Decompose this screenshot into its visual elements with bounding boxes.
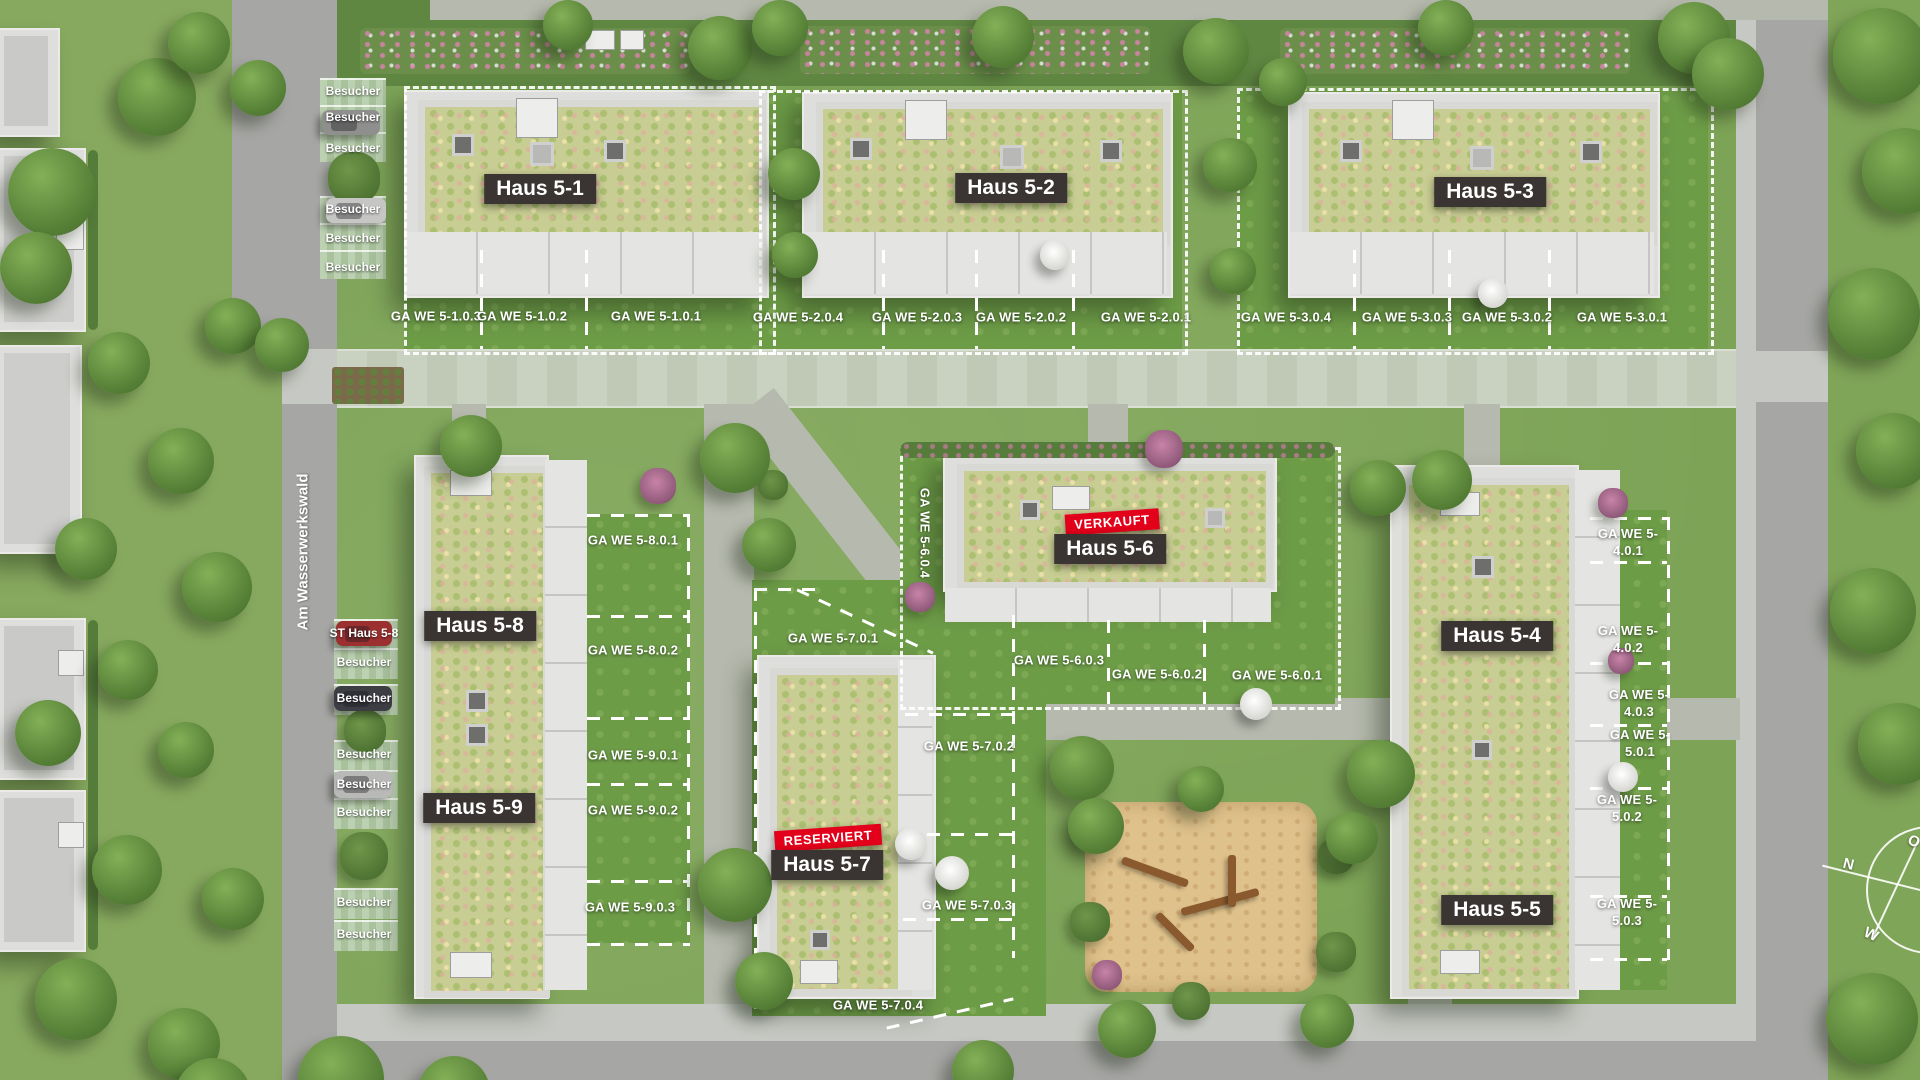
house-label-haus-5-4[interactable]: Haus 5-4 [1441,621,1553,651]
parking-label-st-haus-5-8: ST Haus 5-8 [330,626,399,640]
house-label-haus-5-8[interactable]: Haus 5-8 [424,611,536,641]
tree [15,700,81,766]
parcel-divider [587,880,690,883]
parcel-divider [1353,250,1356,349]
bush [340,832,388,880]
parking-label-visitor: Besucher [337,895,392,909]
parcel-divider [587,783,690,786]
flower-bush [1145,430,1183,468]
parking-label-visitor: Besucher [326,231,381,245]
parcel-label-5-3-0-3: GA WE 5-3.0.3 [1362,310,1452,325]
road-bottom [282,1041,1828,1080]
parcel-divider [1107,620,1110,704]
neighbor-building [0,28,60,137]
parcel-label-5-9-0-3: GA WE 5-9.0.3 [585,900,675,915]
parcel-label-5-3-0-2: GA WE 5-3.0.2 [1462,310,1552,325]
tree [1833,8,1920,104]
parcel-label-5-1-0-3: GA WE 5-1.0.3 [391,309,481,324]
tree [1828,268,1920,360]
tree [1183,18,1249,84]
parking-label-visitor: Besucher [326,110,381,124]
north-path [430,0,1828,20]
site-plan: Am Wasserwerkswald Besucher Besucher Bes… [0,0,1920,1080]
parasol [1478,278,1508,308]
parcel-divider [480,250,483,349]
tree [148,428,214,494]
parasol [1240,688,1272,720]
parcel-label-5-9-0-2: GA WE 5-9.0.2 [588,803,678,818]
roof-structure [800,960,838,984]
parcel-divider [587,514,690,517]
flower-bush [1092,960,1122,990]
parcel-divider [1448,250,1451,349]
parcel-divider [585,250,588,349]
tree [35,958,117,1040]
parking-label-visitor: Besucher [326,84,381,98]
tree [1418,0,1474,56]
tree [182,552,252,622]
neighbor-building [0,790,86,952]
bush [1070,902,1110,942]
parcel-label-5-4-0-1: GA WE 5-4.0.1 [1596,526,1660,560]
parcel-label-5-5-0-1: GA WE 5-5.0.1 [1608,727,1672,761]
parcel-label-5-2-0-2: GA WE 5-2.0.2 [976,310,1066,325]
parcel-divider [882,250,885,349]
terraces-haus-5-8-9 [545,460,587,990]
roof-vent [466,724,488,746]
parasol [935,856,969,890]
tree [92,835,162,905]
parcel-garden-haus-5-8-9 [587,514,690,943]
tree [0,232,72,304]
roof-vent [810,930,830,950]
roof-vent [466,690,488,712]
parking-label-visitor: Besucher [326,260,381,274]
tree [1050,736,1114,800]
tree [168,12,230,74]
parcel-divider [1072,250,1075,349]
hedge [88,620,98,950]
tree [1347,740,1415,808]
parcel-divider [1590,561,1667,564]
parcel-label-5-2-0-1: GA WE 5-2.0.1 [1101,310,1191,325]
parcel-divider [1590,958,1667,961]
roof-structure [1440,950,1480,974]
crosswalk-right [1736,351,1828,402]
tree [1068,798,1124,854]
parcel-divider [905,713,1012,716]
parcel-boundary-haus-5-8-9 [687,514,690,943]
parcel-label-5-2-0-3: GA WE 5-2.0.3 [872,310,962,325]
parcel-label-5-6-0-1: GA WE 5-6.0.1 [1232,668,1322,683]
parking-label-visitor: Besucher [337,777,392,791]
parking-label-visitor: Besucher [326,202,381,216]
house-label-haus-5-9[interactable]: Haus 5-9 [423,793,535,823]
parcel-label-5-4-0-3: GA WE 5-4.0.3 [1607,687,1671,721]
tree [700,423,770,493]
tree [1259,58,1307,106]
tree [202,868,264,930]
parcel-label-5-6-0-2: GA WE 5-6.0.2 [1112,667,1202,682]
tree [98,640,158,700]
parasol [1608,762,1638,792]
parcel-divider [975,250,978,349]
pergola [332,367,404,404]
parcel-divider [1203,620,1206,704]
house-label-haus-5-7[interactable]: Haus 5-7 [771,850,883,880]
house-label-haus-5-2[interactable]: Haus 5-2 [955,173,1067,203]
tree [742,518,796,572]
parcel-label-5-7-0-2: GA WE 5-7.0.2 [924,739,1014,754]
tree [1210,248,1256,294]
tree [688,16,752,80]
parcel-label-5-1-0-2: GA WE 5-1.0.2 [477,309,567,324]
house-label-haus-5-3[interactable]: Haus 5-3 [1434,177,1546,207]
tree [1098,1000,1156,1058]
tree [55,518,117,580]
tree [543,0,593,50]
parcel-label-5-9-0-1: GA WE 5-9.0.1 [588,748,678,763]
flower-bush [1598,488,1628,518]
roof-structure [450,952,492,978]
parcel-divider [587,717,690,720]
bush [328,152,380,204]
patio [58,650,84,676]
tree [698,848,772,922]
house-label-haus-5-1[interactable]: Haus 5-1 [484,174,596,204]
parcel-label-5-8-0-1: GA WE 5-8.0.1 [588,533,678,548]
pedestrian-walkway [337,349,1736,408]
parking-label-visitor: Besucher [337,691,392,705]
tree [440,415,502,477]
tree [772,232,818,278]
bush [344,710,386,752]
tree [88,332,150,394]
parcel-label-5-2-0-4: GA WE 5-2.0.4 [753,310,843,325]
parcel-divider [903,918,1013,921]
flower-bush [905,582,935,612]
parcel-label-5-7-0-3: GA WE 5-7.0.3 [922,898,1012,913]
tree [8,148,96,236]
parcel-label-5-3-0-1: GA WE 5-3.0.1 [1577,310,1667,325]
tree [1300,994,1354,1048]
tree [768,148,820,200]
house-label-haus-5-5[interactable]: Haus 5-5 [1441,895,1553,925]
parcel-label-5-1-0-1: GA WE 5-1.0.1 [611,309,701,324]
roof-vent [1472,556,1494,578]
roof-vent [1472,740,1492,760]
house-label-haus-5-6[interactable]: Haus 5-6 [1054,534,1166,564]
parcel-divider [587,615,690,618]
parcel-label-5-8-0-2: GA WE 5-8.0.2 [588,643,678,658]
parasol [895,828,927,860]
bush [1172,982,1210,1020]
tree [735,952,793,1010]
tree [230,60,286,116]
parcel-label-5-5-0-3: GA WE 5-5.0.3 [1595,896,1659,930]
parcel-label-5-3-0-4: GA WE 5-3.0.4 [1241,310,1331,325]
parcel-divider [587,943,690,946]
tree [1826,973,1918,1065]
parcel-divider [1590,517,1667,520]
parcel-divider [1548,250,1551,349]
road-right [1752,0,1828,1080]
sidewalk-right [1736,0,1756,1080]
tree [1830,568,1916,654]
tree [972,6,1034,68]
tree [1178,766,1224,812]
hedge [900,442,1335,458]
tree [1203,138,1257,192]
tree [1326,812,1378,864]
parcel-label-5-5-0-2: GA WE 5-5.0.2 [1595,792,1659,826]
tree [255,318,309,372]
tree [1412,450,1472,510]
street-name: Am Wasserwerkswald [295,473,312,630]
parasol [1040,240,1070,270]
bush [1316,932,1356,972]
utility-box [620,30,644,50]
parcel-label-5-4-0-2: GA WE 5-4.0.2 [1596,623,1660,657]
parcel-label-5-7-0-4: GA WE 5-7.0.4 [833,998,923,1013]
tree [205,298,261,354]
parking-label-visitor: Besucher [337,655,392,669]
tree [1692,38,1764,110]
parcel-label-5-6-0-3: GA WE 5-6.0.3 [1014,653,1104,668]
parcel-boundary-haus-5-7 [754,588,757,1010]
play-equipment [1228,855,1236,907]
parking-label-visitor: Besucher [337,805,392,819]
tree [752,0,808,56]
parcel-divider [927,833,1012,836]
flower-bush [640,468,676,504]
parcel-label-5-6-0-4: GA WE 5-6.0.4 [918,488,933,578]
parcel-label-5-7-0-1: GA WE 5-7.0.1 [788,631,878,646]
tree [1350,460,1406,516]
parcel-divider [754,588,820,591]
parking-label-visitor: Besucher [337,747,392,761]
patio [58,822,84,848]
parking-label-visitor: Besucher [337,927,392,941]
tree [158,722,214,778]
parking-label-visitor: Besucher [326,141,381,155]
